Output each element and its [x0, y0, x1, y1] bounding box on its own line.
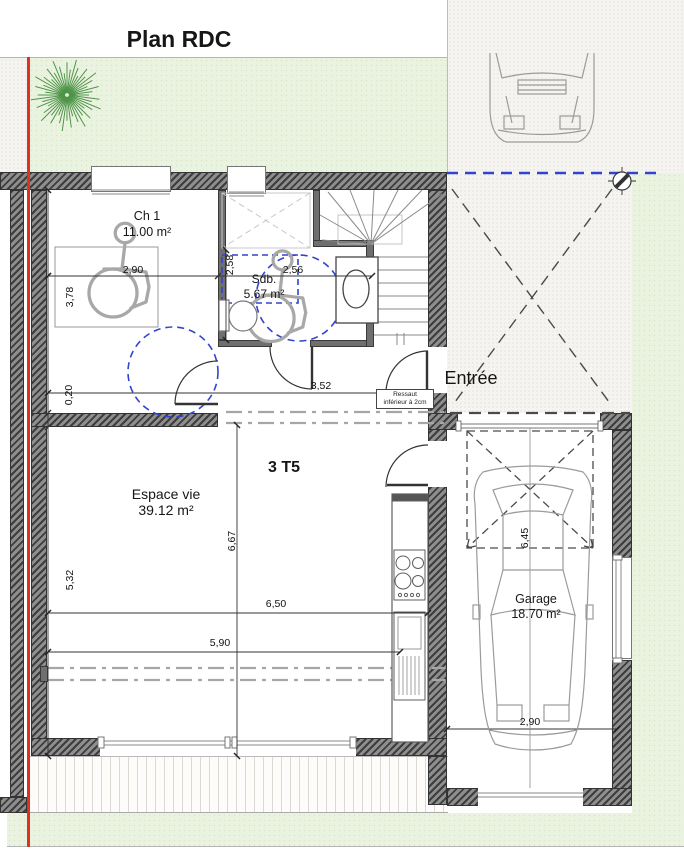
grass-top	[29, 57, 447, 172]
dim-garage-width: 2,90	[520, 716, 540, 728]
dim-wall-thickness: 0,20	[63, 385, 75, 405]
threshold-note-line2: inférieur à 2cm	[384, 399, 427, 406]
dim-garage-depth: 6,45	[519, 528, 531, 548]
room-sdb-name: Sdb.	[252, 273, 277, 287]
upper-floor-outline-lines	[48, 412, 445, 680]
dim-living-depth-left: 5,32	[64, 570, 76, 590]
wall-right-ext	[428, 756, 447, 805]
dim-ch1-width: 2,90	[123, 264, 143, 276]
window-ch1	[91, 166, 171, 192]
wall-garage-top-right	[600, 413, 632, 430]
room-sdb-area: 5.67 m²	[244, 288, 285, 302]
wall-left-outer	[10, 190, 24, 797]
partition-stair-left	[313, 190, 320, 245]
garage-gate-swing-zone	[450, 413, 630, 548]
boundary-red-line	[27, 57, 30, 847]
wall-left-foot	[0, 797, 27, 813]
entrance-label: Entrée	[444, 368, 497, 389]
room-ch1-area: 11.00 m²	[123, 225, 171, 239]
partition-stair-mid	[313, 240, 373, 247]
oven-icon	[394, 612, 425, 700]
room-ch1-name: Ch 1	[134, 209, 160, 223]
shower-area	[222, 193, 310, 248]
wall-garage-top-left	[428, 413, 458, 430]
partition-stub-left	[40, 666, 48, 682]
accessibility-clearances	[128, 255, 342, 417]
dim-sdb-depth: 2,58	[224, 255, 236, 275]
stipple-left-strip	[0, 57, 27, 172]
page-title: Plan RDC	[127, 26, 232, 52]
cooktop-icon	[394, 550, 425, 600]
partition-sdb-bottom-a	[218, 340, 272, 347]
garage-int-door-opening	[428, 441, 447, 487]
kitchen-counter	[392, 494, 428, 742]
garage-door-opening	[478, 788, 583, 806]
terrace-decking	[29, 756, 448, 813]
dim-ch1-depth: 3,78	[64, 287, 76, 307]
wall-divider-020	[31, 413, 218, 427]
garage-gate-opening	[458, 413, 600, 430]
wall-garage-right-b	[612, 660, 632, 805]
grass-right	[632, 173, 684, 847]
window-sdb	[227, 166, 266, 194]
partition-sdb-bottom-b	[310, 340, 372, 347]
room-garage-name: Garage	[515, 592, 557, 606]
room-living-area: 39.12 m²	[138, 502, 193, 518]
dim-sdb-width: 2,56	[283, 264, 303, 276]
threshold-note: Ressaut inférieur à 2cm	[376, 389, 434, 409]
unit-type-label: 3 T5	[268, 459, 300, 477]
staircase	[320, 190, 442, 345]
dim-living-depth-mid: 6,67	[226, 531, 238, 551]
wall-top	[0, 172, 447, 190]
window-garage	[612, 557, 632, 659]
dim-living-width-lower: 5,90	[210, 637, 230, 649]
dim-hall-width: 3,52	[311, 380, 331, 392]
wall-garage-right-a	[612, 430, 632, 558]
threshold-note-line1: Ressaut	[393, 391, 417, 398]
partition-stair-right	[366, 240, 374, 347]
dim-living-width-upper: 6,50	[266, 598, 286, 610]
sliding-bay-opening	[100, 736, 356, 756]
room-garage-area: 18.70 m²	[511, 607, 560, 621]
room-living-name: Espace vie	[132, 486, 200, 502]
driveway	[447, 0, 684, 173]
floor-plan-canvas: Plan RDC Ch 1 11.00 m² Sdb. 5.67 m² Espa…	[0, 0, 684, 866]
grass-bottom	[7, 813, 684, 847]
